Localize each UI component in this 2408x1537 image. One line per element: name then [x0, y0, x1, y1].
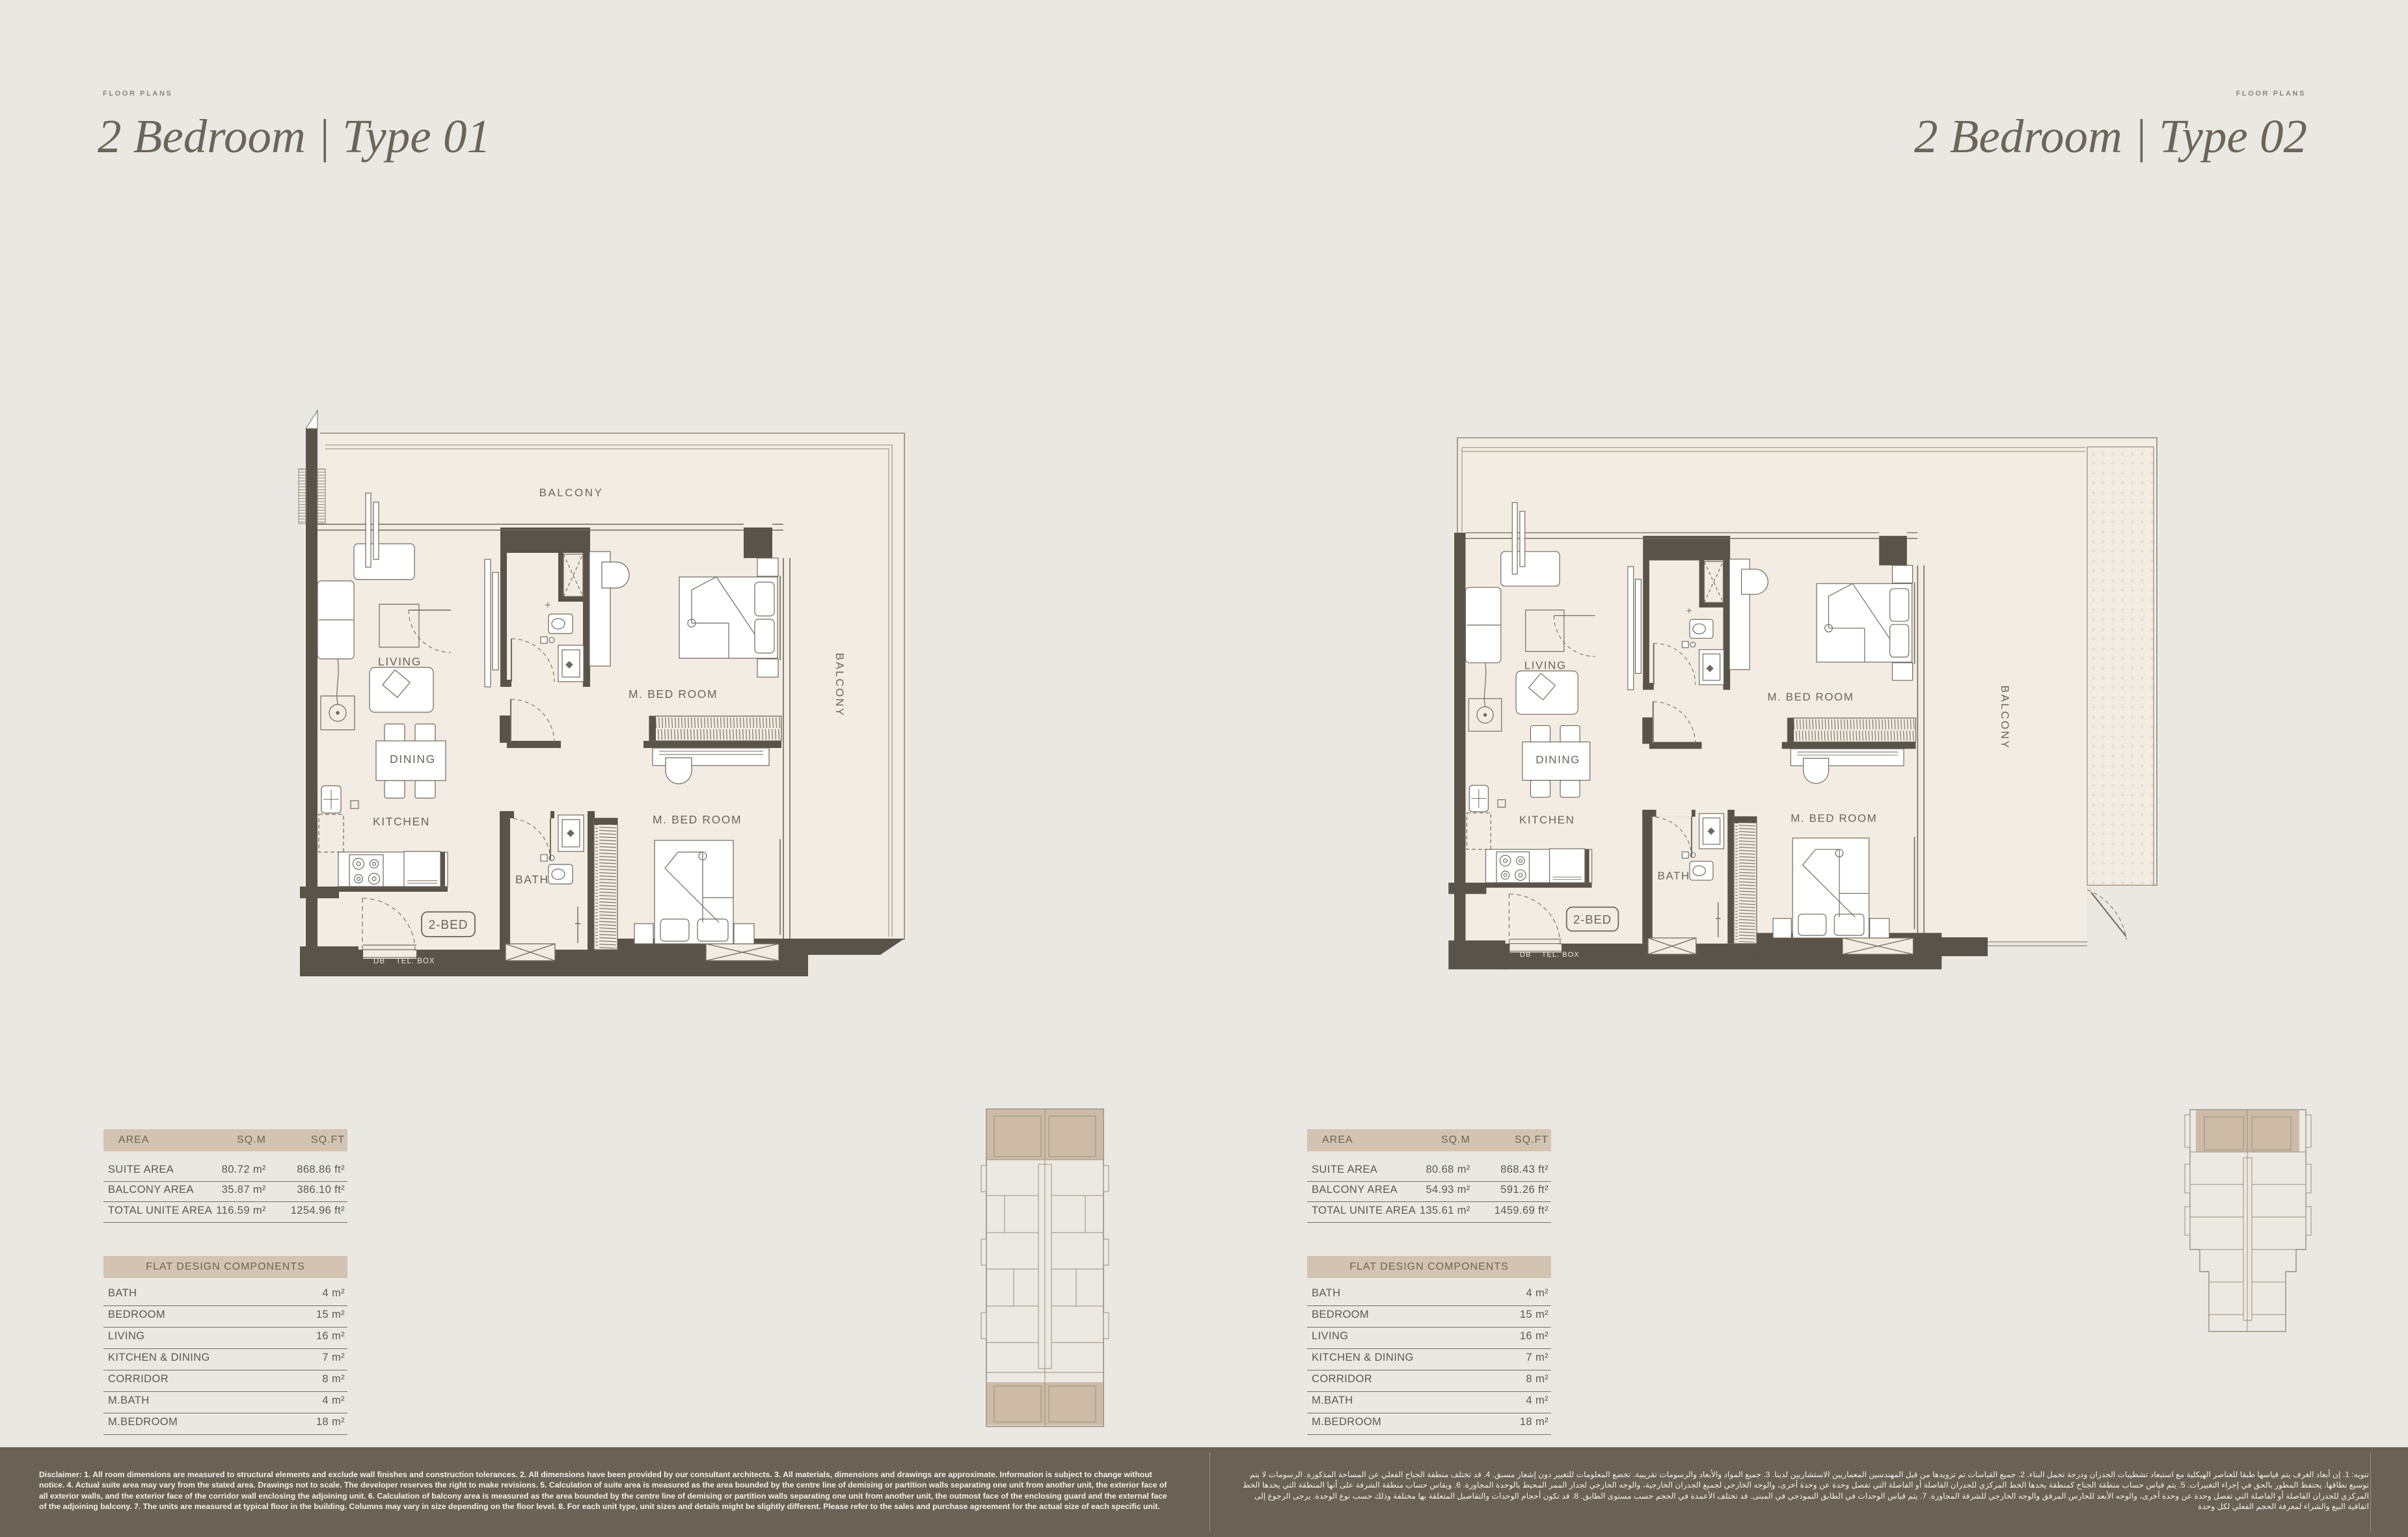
svg-text:BALCONY: BALCONY: [1999, 686, 2011, 750]
svg-text:BALCONY: BALCONY: [539, 487, 604, 499]
svg-text:BALCONY: BALCONY: [833, 653, 846, 717]
